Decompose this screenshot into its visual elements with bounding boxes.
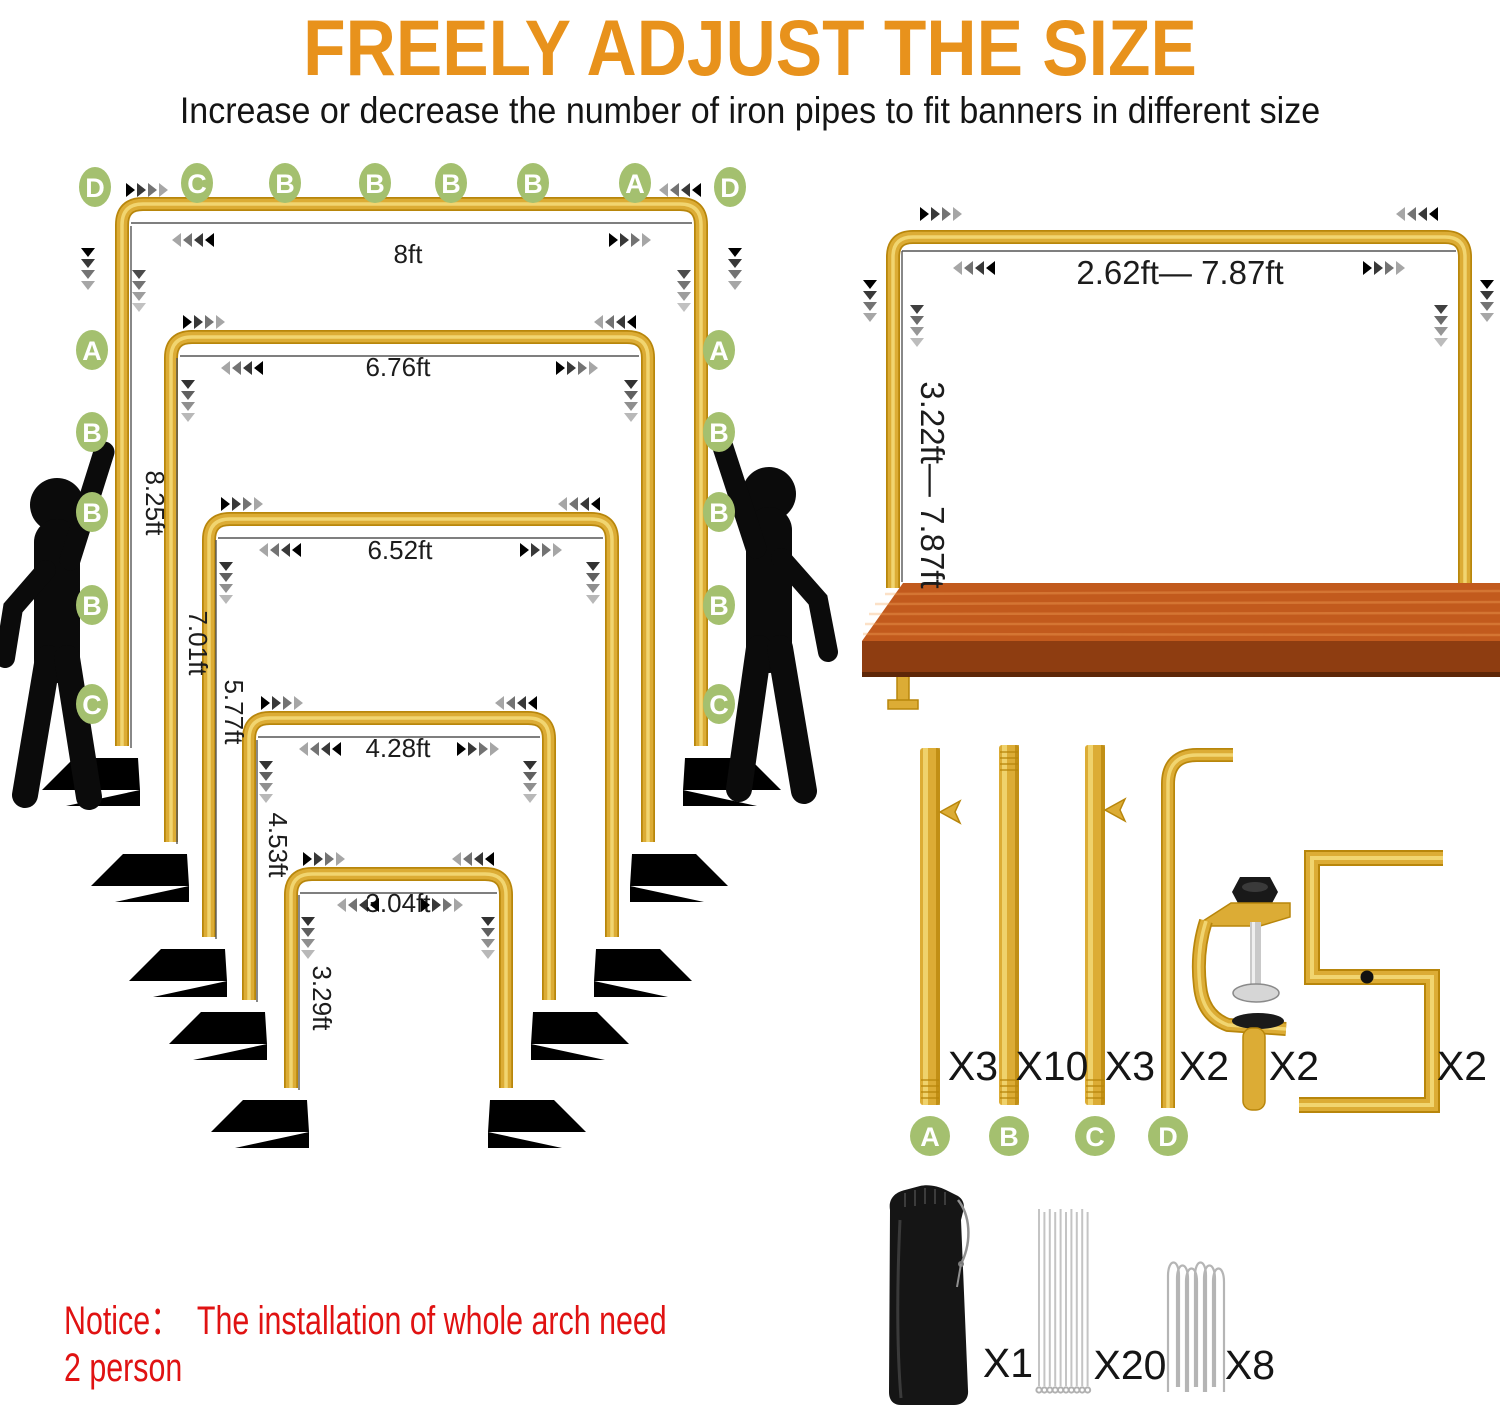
wooden-table — [862, 583, 1500, 677]
arch3-height-label: 5.77ft — [219, 679, 249, 745]
table-clamp-count: X2 — [1269, 1043, 1319, 1089]
nested-arches-diagram: 8ft 8.25ft 6.76ft 7.01ft 6.52ft 5.77ft 4… — [5, 163, 828, 1148]
pipe-badge: B — [709, 591, 729, 621]
arch5-height-label: 3.29ft — [307, 965, 337, 1031]
table-frame-dimensions: 2.62ft— 7.87ft 3.22ft— 7.87ft — [902, 251, 1456, 589]
pipe-badge: B — [441, 169, 461, 199]
rod-bundle — [1036, 1209, 1090, 1393]
pipe-badge: B — [275, 169, 295, 199]
carry-bag-count: X1 — [983, 1340, 1033, 1386]
pipe-badge: D — [85, 173, 105, 203]
pipe-badge: A — [625, 169, 645, 199]
pipe-badge: B — [365, 169, 385, 199]
installation-notice: Notice： The installation of whole arch n… — [64, 1204, 687, 1411]
arch1-width-label: 8ft — [394, 239, 424, 269]
pipe-badge: B — [82, 418, 102, 448]
pipe-badge: B — [709, 498, 729, 528]
pipe-badge: A — [709, 336, 729, 366]
pipe-a-badge: A — [920, 1122, 940, 1152]
table-height-label: 3.22ft— 7.87ft — [914, 381, 951, 588]
notice-line: Notice： The installation of whole arch n… — [64, 1298, 687, 1392]
pipe-badge: D — [720, 173, 740, 203]
diagram-canvas: 8ft 8.25ft 6.76ft 7.01ft 6.52ft 5.77ft 4… — [0, 0, 1500, 1411]
pipe-b-count: X10 — [1016, 1043, 1089, 1089]
arch2-height-label: 7.01ft — [183, 610, 213, 676]
pipe-b-badge: B — [999, 1122, 1019, 1152]
person-silhouette-right — [721, 441, 828, 791]
tabletop-frame-diagram: 2.62ft— 7.87ft 3.22ft— 7.87ft — [862, 207, 1500, 709]
pipe-a-count: X3 — [948, 1043, 998, 1089]
parts-section: X3 X10 X3 X2 X2 X2 A B C D — [910, 745, 1487, 1156]
pipe-d-count: X2 — [1179, 1043, 1229, 1089]
rod-bundle-count: X20 — [1094, 1342, 1167, 1388]
accessories-section: X1 X20 X8 — [889, 1185, 1275, 1405]
s-bracket-count: X2 — [1437, 1043, 1487, 1089]
s-bracket-part — [1299, 858, 1443, 1105]
pipe-badge: B — [523, 169, 543, 199]
pipe-badge: C — [709, 690, 729, 720]
carry-bag — [889, 1185, 968, 1405]
product-infographic: FREELY ADJUST THE SIZE Increase or decre… — [0, 0, 1500, 1411]
pipe-badge: C — [82, 690, 102, 720]
pipe-c-count: X3 — [1105, 1043, 1155, 1089]
pipe-badge: B — [82, 591, 102, 621]
arch4-width-label: 4.28ft — [365, 733, 431, 763]
pipe-badge: B — [82, 498, 102, 528]
pipe-d-badge: D — [1158, 1122, 1178, 1152]
pipe-badge: A — [82, 336, 102, 366]
arch1-height-label: 8.25ft — [140, 470, 170, 536]
pipe-c-badge: C — [1085, 1122, 1105, 1152]
pipe-badge: B — [709, 418, 729, 448]
ground-stakes — [1168, 1263, 1224, 1393]
ground-stakes-count: X8 — [1225, 1342, 1275, 1388]
table-width-label: 2.62ft— 7.87ft — [1076, 254, 1283, 291]
pipe-badge: C — [187, 169, 207, 199]
arch2-width-label: 6.76ft — [365, 352, 431, 382]
part-letter-badges: A B C D — [910, 1116, 1188, 1156]
arch4-height-label: 4.53ft — [263, 812, 293, 878]
arch3-width-label: 6.52ft — [367, 535, 433, 565]
